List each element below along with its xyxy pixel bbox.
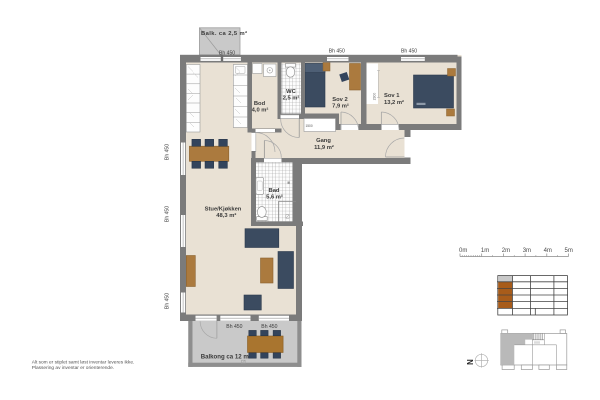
svg-text:Bh 450: Bh 450 (165, 144, 171, 160)
svg-text:Bh 450: Bh 450 (329, 48, 345, 54)
svg-text:Bod: Bod (254, 101, 266, 107)
svg-text:WC: WC (286, 89, 296, 95)
svg-text:Bh 450: Bh 450 (165, 206, 171, 222)
svg-text:N: N (466, 359, 475, 365)
svg-text:0m: 0m (459, 248, 467, 254)
svg-text:1500: 1500 (306, 124, 313, 128)
svg-text:11,9 m²: 11,9 m² (314, 144, 334, 151)
svg-text:4,0 m²: 4,0 m² (252, 106, 269, 113)
svg-text:Sov 1: Sov 1 (384, 93, 400, 99)
svg-text:5,6 m²: 5,6 m² (266, 194, 283, 201)
svg-text:Bh 450: Bh 450 (261, 324, 277, 330)
svg-text:Stue/Kjøkken: Stue/Kjøkken (205, 207, 242, 213)
svg-text:Gang: Gang (316, 138, 331, 144)
svg-text:Alt som er stiplet samt løst i: Alt som er stiplet samt løst inventar le… (32, 360, 135, 366)
svg-text:Bad: Bad (269, 188, 280, 194)
svg-text:5m: 5m (565, 248, 573, 254)
svg-text:7,9 m²: 7,9 m² (332, 102, 349, 109)
svg-text:3m: 3m (523, 248, 531, 254)
svg-text:2m: 2m (502, 248, 510, 254)
svg-text:1m: 1m (481, 248, 489, 254)
svg-text:Bh 450: Bh 450 (401, 48, 417, 54)
svg-text:Bh 450: Bh 450 (219, 51, 235, 57)
svg-text:Plassering av inventar er orie: Plassering av inventar er orienterende. (32, 365, 114, 371)
svg-text:Sov 2: Sov 2 (332, 97, 347, 103)
svg-text:2300: 2300 (373, 93, 377, 101)
svg-text:2,5 m²: 2,5 m² (283, 94, 300, 101)
svg-text:Balk. ca 2,5 m²: Balk. ca 2,5 m² (201, 30, 247, 37)
svg-text:Bh 450: Bh 450 (226, 324, 242, 330)
svg-text:Bh 450: Bh 450 (165, 293, 171, 309)
svg-text:Balkong ca 12 m²: Balkong ca 12 m² (201, 353, 251, 360)
svg-text:4m: 4m (544, 248, 552, 254)
svg-text:13,2 m²: 13,2 m² (384, 99, 404, 106)
svg-text:48,3 m²: 48,3 m² (216, 212, 236, 219)
